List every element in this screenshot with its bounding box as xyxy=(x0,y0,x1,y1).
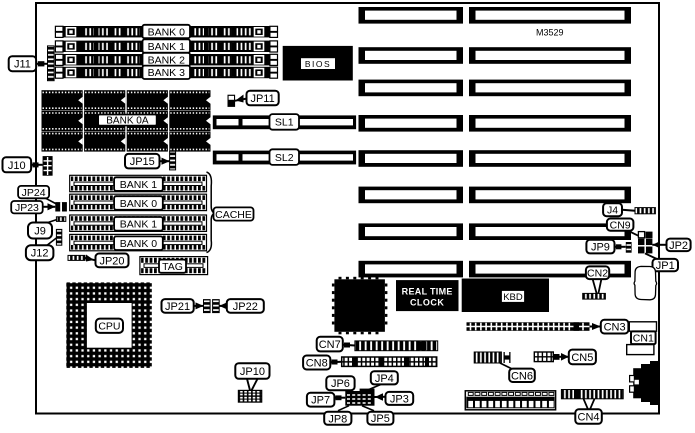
svg-text:CN7: CN7 xyxy=(319,339,341,351)
svg-text:CN5: CN5 xyxy=(571,352,593,364)
svg-text:CN2: CN2 xyxy=(587,268,608,280)
svg-text:JP24: JP24 xyxy=(22,187,46,199)
svg-text:CN6: CN6 xyxy=(511,370,533,382)
svg-text:SL1: SL1 xyxy=(275,117,294,129)
svg-text:BANK 1: BANK 1 xyxy=(120,179,158,191)
svg-text:CN8: CN8 xyxy=(306,357,328,369)
svg-text:BANK 0: BANK 0 xyxy=(148,26,186,38)
svg-text:JP1: JP1 xyxy=(656,260,675,272)
svg-text:REAL TIME: REAL TIME xyxy=(402,287,453,297)
svg-text:KBD: KBD xyxy=(503,292,523,303)
svg-text:BANK 0: BANK 0 xyxy=(120,238,158,250)
svg-text:JP23: JP23 xyxy=(15,202,39,214)
svg-text:J12: J12 xyxy=(31,248,49,260)
svg-text:JP8: JP8 xyxy=(328,413,347,425)
svg-text:JP15: JP15 xyxy=(130,156,155,168)
svg-text:JP3: JP3 xyxy=(390,393,409,405)
svg-text:CN9: CN9 xyxy=(610,219,631,231)
svg-text:BIOS: BIOS xyxy=(305,59,331,69)
svg-text:J4: J4 xyxy=(607,205,618,217)
svg-text:M3529: M3529 xyxy=(536,28,564,38)
svg-text:JP22: JP22 xyxy=(233,301,258,313)
svg-text:JP21: JP21 xyxy=(165,301,190,313)
svg-text:CACHE: CACHE xyxy=(215,209,252,221)
svg-text:JP20: JP20 xyxy=(99,255,124,267)
svg-text:SL2: SL2 xyxy=(275,152,294,164)
svg-text:J9: J9 xyxy=(34,225,46,237)
svg-text:CPU: CPU xyxy=(98,321,120,333)
svg-text:BANK 1: BANK 1 xyxy=(120,219,158,231)
svg-text:JP10: JP10 xyxy=(240,366,265,378)
svg-text:JP9: JP9 xyxy=(591,242,610,254)
svg-text:TAG: TAG xyxy=(162,261,183,273)
svg-text:JP11: JP11 xyxy=(250,93,274,105)
svg-text:JP6: JP6 xyxy=(331,378,350,390)
svg-text:BANK 2: BANK 2 xyxy=(148,54,186,66)
svg-text:CLOCK: CLOCK xyxy=(410,298,445,308)
svg-text:CN4: CN4 xyxy=(578,412,600,424)
svg-text:JP5: JP5 xyxy=(371,413,390,425)
svg-text:JP7: JP7 xyxy=(311,395,330,407)
svg-text:CN1: CN1 xyxy=(633,333,654,345)
svg-text:JP2: JP2 xyxy=(669,240,688,252)
svg-text:BANK 0: BANK 0 xyxy=(120,198,158,210)
svg-text:BANK 1: BANK 1 xyxy=(148,41,186,53)
svg-text:BANK 3: BANK 3 xyxy=(148,67,186,79)
svg-text:BANK 0A: BANK 0A xyxy=(106,116,149,127)
svg-text:J11: J11 xyxy=(14,59,31,71)
svg-text:CN3: CN3 xyxy=(604,322,626,334)
svg-text:JP4: JP4 xyxy=(375,373,394,385)
svg-text:J10: J10 xyxy=(8,160,26,172)
